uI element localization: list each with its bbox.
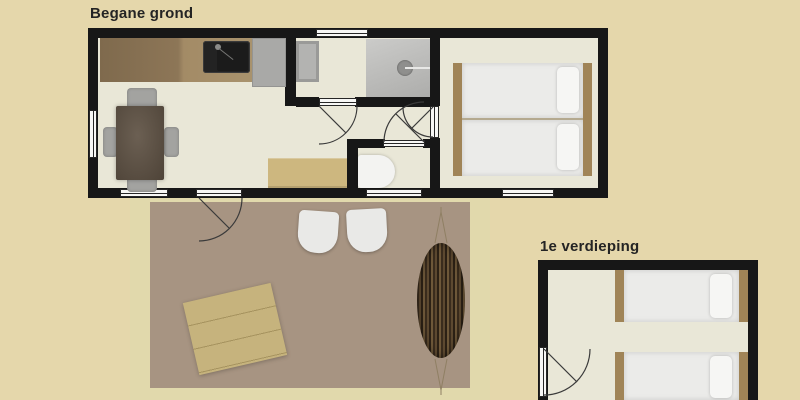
wall-bedroom-divider-bottom: [430, 138, 440, 198]
window-bathroom-top: [316, 29, 368, 37]
refrigerator: [252, 38, 286, 87]
wall-living-bathroom: [285, 28, 296, 106]
shower-drain-icon: [397, 60, 413, 76]
window-living-left: [89, 110, 97, 158]
bed-footboard: [453, 63, 462, 176]
storage-cabinet: [296, 41, 319, 82]
bed-footboard: [615, 352, 624, 400]
wall-toilet-left: [347, 140, 358, 188]
kitchen-sink: [203, 41, 250, 73]
wall-bathroom-bottom-right: [355, 97, 430, 107]
wall-bathroom-bottom-left: [296, 97, 319, 107]
ground-floor-title: Begane grond: [90, 5, 193, 22]
pillow: [557, 67, 579, 113]
bed-footboard: [615, 270, 624, 322]
door-bathroom: [319, 98, 357, 106]
hammock: [417, 243, 465, 358]
door-terrace: [196, 189, 242, 197]
garden-chair: [346, 208, 388, 253]
sink-basin: [217, 43, 248, 71]
bed-headboard: [739, 270, 748, 322]
dining-table: [116, 106, 164, 180]
wall-bedroom-divider-top: [430, 28, 440, 106]
bed-headboard: [739, 352, 748, 400]
pillow: [710, 356, 732, 398]
shower: [366, 39, 430, 97]
door-first-floor: [539, 347, 547, 397]
sideboard-bench: [268, 158, 347, 188]
dining-chair-right: [164, 127, 179, 157]
pillow: [557, 124, 579, 170]
first-floor-title: 1e verdieping: [540, 238, 639, 255]
floorplan-image: Begane grond: [0, 0, 800, 400]
toilet: [358, 155, 395, 188]
door-toilet: [383, 140, 425, 147]
pillow: [710, 274, 732, 318]
bed-headboard: [583, 63, 592, 176]
door-bedroom: [430, 106, 439, 138]
window-bedroom-bottom: [502, 189, 554, 197]
window-toilet-bottom: [366, 189, 422, 197]
